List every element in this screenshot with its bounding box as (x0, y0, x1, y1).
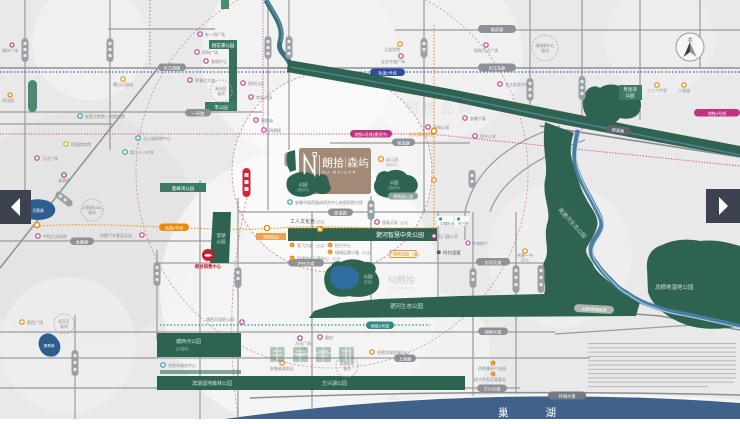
svg-text:(在建): (在建) (316, 219, 325, 224)
svg-text:科技园: 科技园 (2, 97, 14, 103)
svg-text:合肥一中: 合肥一中 (517, 252, 533, 258)
svg-text:安医大附院一附院医院: 安医大附院一附院医院 (85, 113, 125, 119)
svg-text:中海地产: 中海地产 (472, 240, 488, 246)
svg-text:金寨路: 金寨路 (76, 238, 89, 245)
svg-text:板块: 板块 (60, 324, 68, 329)
svg-text:经济开发区管委会: 经济开发区管委会 (474, 376, 506, 382)
svg-text:长江批发市场: 长江批发市场 (505, 81, 529, 87)
svg-text:朗拾: 朗拾 (322, 156, 344, 170)
svg-text:工人文化宫: 工人文化宫 (290, 218, 315, 225)
svg-text:月亮湾: 月亮湾 (623, 86, 637, 93)
svg-text:和平小学: 和平小学 (480, 133, 496, 139)
svg-text:(在建): (在建) (316, 243, 325, 248)
svg-text:裕溪路: 裕溪路 (397, 139, 410, 146)
svg-text:天鹅湖CBD: 天鹅湖CBD (82, 205, 102, 210)
svg-text:轨道2号线: 轨道2号线 (378, 69, 396, 75)
svg-text:2: 2 (492, 373, 494, 377)
svg-text:桃花潭公园: 桃花潭公园 (212, 42, 235, 49)
svg-text:稻香楼宾馆: 稻香楼宾馆 (71, 141, 91, 147)
svg-text:轨道3号线: 轨道3号线 (165, 224, 183, 230)
svg-text:临泉路: 临泉路 (491, 26, 504, 33)
svg-text:方兴湖公园: 方兴湖公园 (322, 380, 347, 387)
svg-text:三十六中学: 三十六中学 (647, 87, 667, 93)
svg-text:(规划中): (规划中) (388, 185, 400, 190)
svg-text:融创: 融创 (325, 334, 333, 340)
svg-text:望湖城站: 望湖城站 (263, 234, 279, 240)
svg-text:朗拾销售中心: 朗拾销售中心 (195, 263, 222, 270)
svg-text:地铁4号线: 地铁4号线 (708, 110, 726, 116)
svg-text:合肥循环产业园: 合肥循环产业园 (478, 365, 506, 371)
svg-text:淝河智慧中央公园: 淝河智慧中央公园 (376, 231, 424, 239)
svg-text:四牌楼: 四牌楼 (269, 127, 281, 133)
svg-text:锦绣宝园: 锦绣宝园 (393, 251, 409, 257)
svg-text:2: 2 (329, 244, 331, 248)
svg-text:地铁5号线: 地铁5号线 (371, 322, 389, 328)
svg-text:银泰天际: 银泰天际 (382, 219, 398, 225)
svg-text:地铁4号线(建设中): 地铁4号线(建设中) (355, 131, 389, 137)
svg-text:淝河生态公园: 淝河生态公园 (390, 302, 424, 310)
svg-text:琥珀山庄: 琥珀山庄 (248, 80, 264, 86)
svg-text:市公园: 市公园 (214, 104, 228, 111)
svg-text:瑶海新中心: 瑶海新中心 (536, 43, 555, 48)
svg-text:第二十八中学: 第二十八中学 (130, 149, 154, 155)
svg-text:恒大中心: 恒大中心 (335, 242, 351, 248)
svg-text:杏花公园: 杏花公园 (256, 94, 272, 100)
svg-text:(在建): (在建) (362, 250, 371, 255)
svg-text:幼儿园: 幼儿园 (386, 156, 398, 162)
svg-text:香格中心: 香格中心 (211, 58, 227, 64)
svg-text:(已建成): (已建成) (176, 346, 189, 351)
svg-text:滨湖湿地森林公园: 滨湖湿地森林公园 (192, 380, 232, 387)
svg-text:包河大道: 包河大道 (485, 259, 503, 266)
svg-text:四通商业运营中心: 四通商业运营中心 (297, 255, 329, 261)
svg-text:板块: 板块 (217, 91, 225, 96)
svg-text:锦绣湖公园: 锦绣湖公园 (393, 193, 413, 199)
svg-text:板块: 板块 (88, 210, 96, 215)
svg-text:塘西河湿地公园: 塘西河湿地公园 (206, 316, 234, 322)
svg-text:万达广场: 万达广场 (42, 155, 58, 161)
svg-text:安徽中医药临床研究中心安医附院分院: 安徽中医药临床研究中心安医附院分院 (295, 199, 363, 205)
svg-text:翡翠湖: 翡翠湖 (44, 343, 55, 348)
svg-text:合肥汽车客运总站: 合肥汽车客运总站 (100, 232, 132, 238)
svg-text:蜀峰湾公园: 蜀峰湾公园 (172, 185, 195, 192)
svg-text:保利广场: 保利广场 (202, 49, 218, 55)
svg-text:万达广场: 万达广场 (295, 340, 311, 346)
svg-text:中国科大: 中国科大 (440, 221, 455, 226)
svg-text:之心城购物中心: 之心城购物中心 (143, 135, 171, 141)
svg-text:绿城运营小镇: 绿城运营小镇 (335, 249, 359, 255)
svg-text:时代领寓: 时代领寓 (443, 250, 461, 257)
svg-text:城市广场: 城市广场 (2, 47, 18, 53)
svg-text:合肥市政务中心: 合肥市政务中心 (168, 362, 196, 368)
svg-text:方兴大道: 方兴大道 (484, 385, 502, 392)
svg-text:(规划中): (规划中) (297, 187, 309, 192)
svg-text:(规划中): (规划中) (386, 162, 398, 167)
svg-text:4: 4 (291, 257, 293, 261)
svg-text:奥飞大厦: 奥飞大厦 (297, 242, 313, 248)
svg-text:中科大先研院: 中科大先研院 (43, 233, 67, 239)
svg-text:石门路小学: 石门路小学 (438, 233, 458, 239)
svg-text:安徽省政务区: 安徽省政务区 (270, 365, 294, 371)
svg-text:江淮学院: 江淮学院 (384, 46, 400, 52)
svg-text:1: 1 (492, 362, 494, 366)
svg-text:市三院: 市三院 (458, 221, 469, 226)
svg-text:十里庙: 十里庙 (678, 87, 690, 93)
svg-text:1: 1 (291, 244, 293, 248)
svg-text:巢湖: 巢湖 (498, 406, 593, 419)
svg-text:(在建): (在建) (400, 220, 409, 225)
svg-text:省政府: 省政府 (58, 177, 70, 183)
svg-text:肥西广场: 肥西广场 (27, 319, 43, 325)
svg-text:郎溪路: 郎溪路 (334, 209, 347, 216)
svg-text:环湖大道: 环湖大道 (559, 393, 577, 400)
svg-text:城隍庙: 城隍庙 (261, 117, 273, 123)
svg-text:NU MAISON: NU MAISON (322, 171, 357, 175)
svg-text:塘西河公园: 塘西河公园 (176, 338, 201, 345)
svg-text:板块: 板块 (343, 366, 351, 371)
svg-text:经开区: 经开区 (58, 319, 70, 324)
svg-text:瑶海万达广场: 瑶海万达广场 (474, 47, 498, 53)
svg-text:龙栖地湿地公园: 龙栖地湿地公园 (655, 283, 694, 291)
svg-text:(规划): (规划) (521, 258, 530, 263)
svg-text:(在建): (在建) (412, 252, 420, 257)
svg-text:天鹅湖: 天鹅湖 (32, 208, 44, 213)
svg-text:板块: 板块 (541, 48, 549, 53)
svg-text:合肥滨湖会展中心: 合肥滨湖会展中心 (377, 349, 409, 355)
svg-text:NU MAISON: NU MAISON (389, 286, 415, 290)
svg-text:(在建): (在建) (364, 279, 373, 284)
svg-text:宝业东城广场: 宝业东城广场 (381, 58, 405, 64)
svg-text:(在建): (在建) (332, 256, 341, 261)
svg-text:蜀山公园站: 蜀山公园站 (113, 81, 133, 87)
svg-text:长江东路: 长江东路 (489, 65, 507, 72)
svg-text:锦绣大道: 锦绣大道 (485, 328, 503, 335)
svg-text:望湖: 望湖 (217, 232, 226, 239)
svg-text:N|朗拾: N|朗拾 (388, 274, 415, 285)
svg-text:刊楼品网: 刊楼品网 (405, 101, 477, 116)
svg-text:有一间广场: 有一间广场 (205, 31, 225, 37)
svg-text:新站区: 新站区 (215, 86, 227, 91)
svg-text:上海路: 上海路 (399, 355, 412, 362)
svg-text:3: 3 (329, 251, 331, 255)
svg-text:森屿: 森屿 (347, 156, 369, 170)
svg-text:荣事达大道: 荣事达大道 (195, 77, 215, 83)
svg-text:一环路: 一环路 (192, 110, 205, 117)
svg-text:长江西路: 长江西路 (164, 64, 182, 71)
